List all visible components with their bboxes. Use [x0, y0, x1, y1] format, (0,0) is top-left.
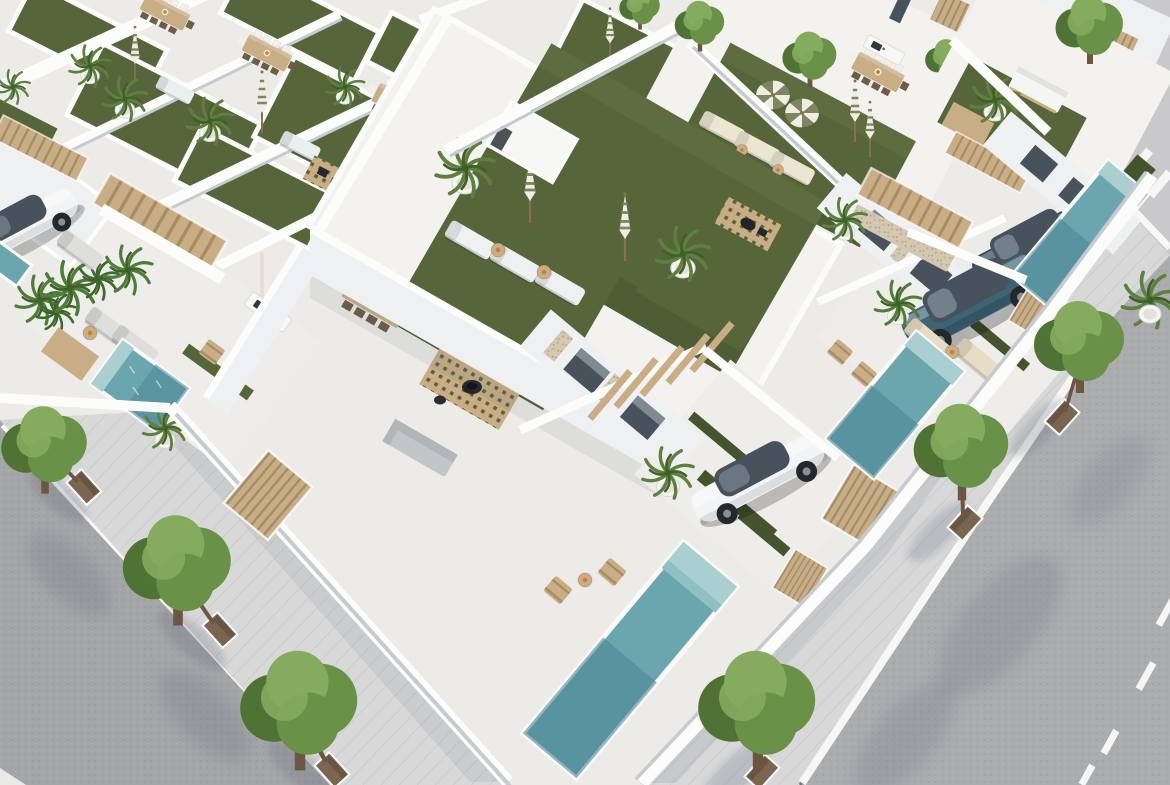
side-table: [578, 573, 592, 587]
side-table: [537, 265, 551, 279]
side-table: [491, 243, 505, 257]
open-parasol: [785, 99, 819, 128]
side-table: [83, 326, 97, 340]
architectural-render-viewport: [0, 0, 1170, 785]
villa-development-render: [0, 0, 1170, 785]
pot: [1139, 305, 1161, 323]
